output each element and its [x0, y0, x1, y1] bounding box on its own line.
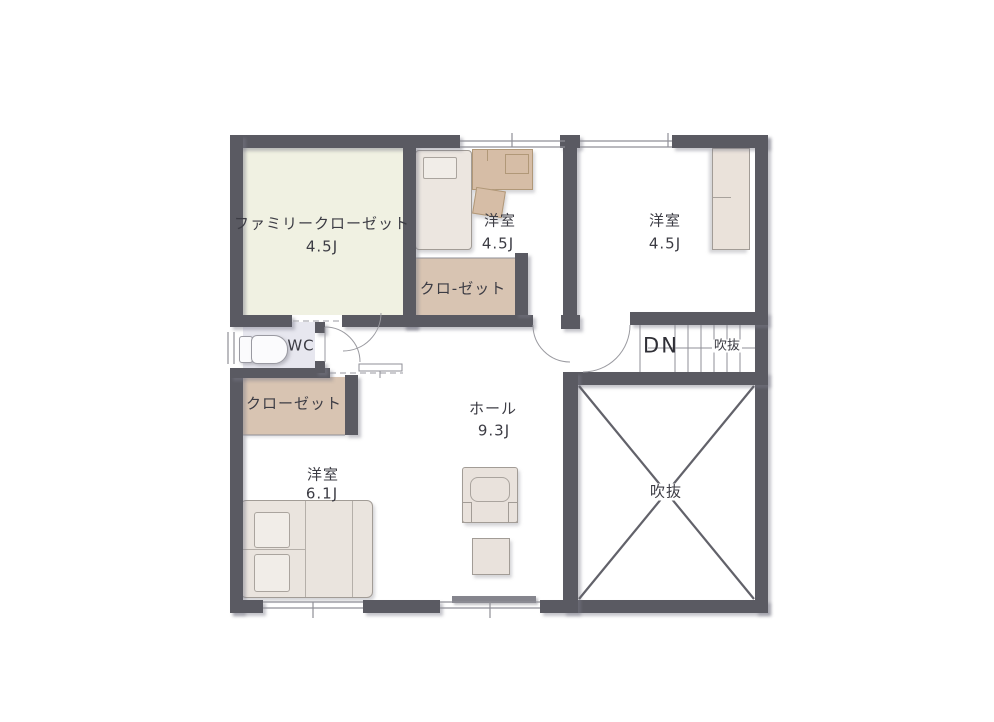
wall — [630, 312, 768, 325]
wall — [672, 135, 768, 148]
room-size-bedroom-bottom-left: 6.1J — [306, 487, 338, 502]
bed-pillow — [254, 512, 290, 548]
armchair-arm — [508, 502, 518, 523]
wall — [345, 375, 358, 435]
toilet-bowl — [251, 335, 288, 364]
bed-pillow — [254, 554, 290, 592]
bed-seam — [305, 501, 306, 597]
wall — [363, 600, 440, 613]
wall — [230, 135, 460, 148]
room-label-bedroom-bottom-left: 洋室 — [307, 468, 339, 483]
bed-pillow — [423, 157, 457, 179]
armchair-arm — [462, 502, 472, 523]
room-size-bedroom-top-right: 4.5J — [649, 237, 681, 252]
room-size-family-closet: 4.5J — [306, 240, 338, 255]
ottoman — [472, 538, 510, 575]
room-size-hall: 9.3J — [478, 424, 510, 439]
room-label-wc: WC — [287, 339, 314, 354]
wall — [230, 368, 243, 613]
room-label-bedroom-top-middle: 洋室 — [484, 214, 516, 229]
bed-seam — [352, 501, 353, 597]
stairs-dn-label: DN — [643, 336, 679, 357]
room-label-closet-top: クロ-ゼット — [420, 282, 506, 297]
floor-plan: ファミリークローゼット 4.5J 洋室 4.5J クロ-ゼット 洋室 4.5J … — [0, 0, 994, 722]
room-label-bedroom-top-right: 洋室 — [649, 214, 681, 229]
desk-line — [487, 149, 488, 161]
wall — [403, 146, 416, 327]
room-label-closet-left: クローゼット — [246, 397, 342, 412]
void-label: 吹抜 — [647, 484, 685, 501]
sliding-door — [359, 364, 402, 378]
armchair-cushion — [470, 477, 510, 502]
desk-shelf — [505, 154, 529, 174]
stairs-void-label: 吹抜 — [712, 340, 742, 353]
wall — [403, 315, 533, 327]
wall — [230, 600, 263, 613]
wardrobe — [712, 148, 750, 250]
wall — [563, 372, 578, 613]
wall — [515, 253, 528, 315]
wall — [563, 372, 768, 385]
wall — [315, 322, 325, 333]
room-label-hall: ホール — [469, 402, 517, 417]
bed-seam — [241, 549, 305, 550]
room-size-bedroom-top-middle: 4.5J — [482, 237, 514, 252]
wardrobe-divider — [713, 197, 731, 198]
door-post — [561, 315, 580, 329]
wall — [230, 315, 292, 327]
linework-layer — [0, 0, 994, 722]
room-label-family-closet: ファミリークローゼット — [234, 217, 410, 232]
wall — [563, 146, 577, 316]
tv-board — [452, 596, 536, 603]
wall — [315, 361, 325, 373]
